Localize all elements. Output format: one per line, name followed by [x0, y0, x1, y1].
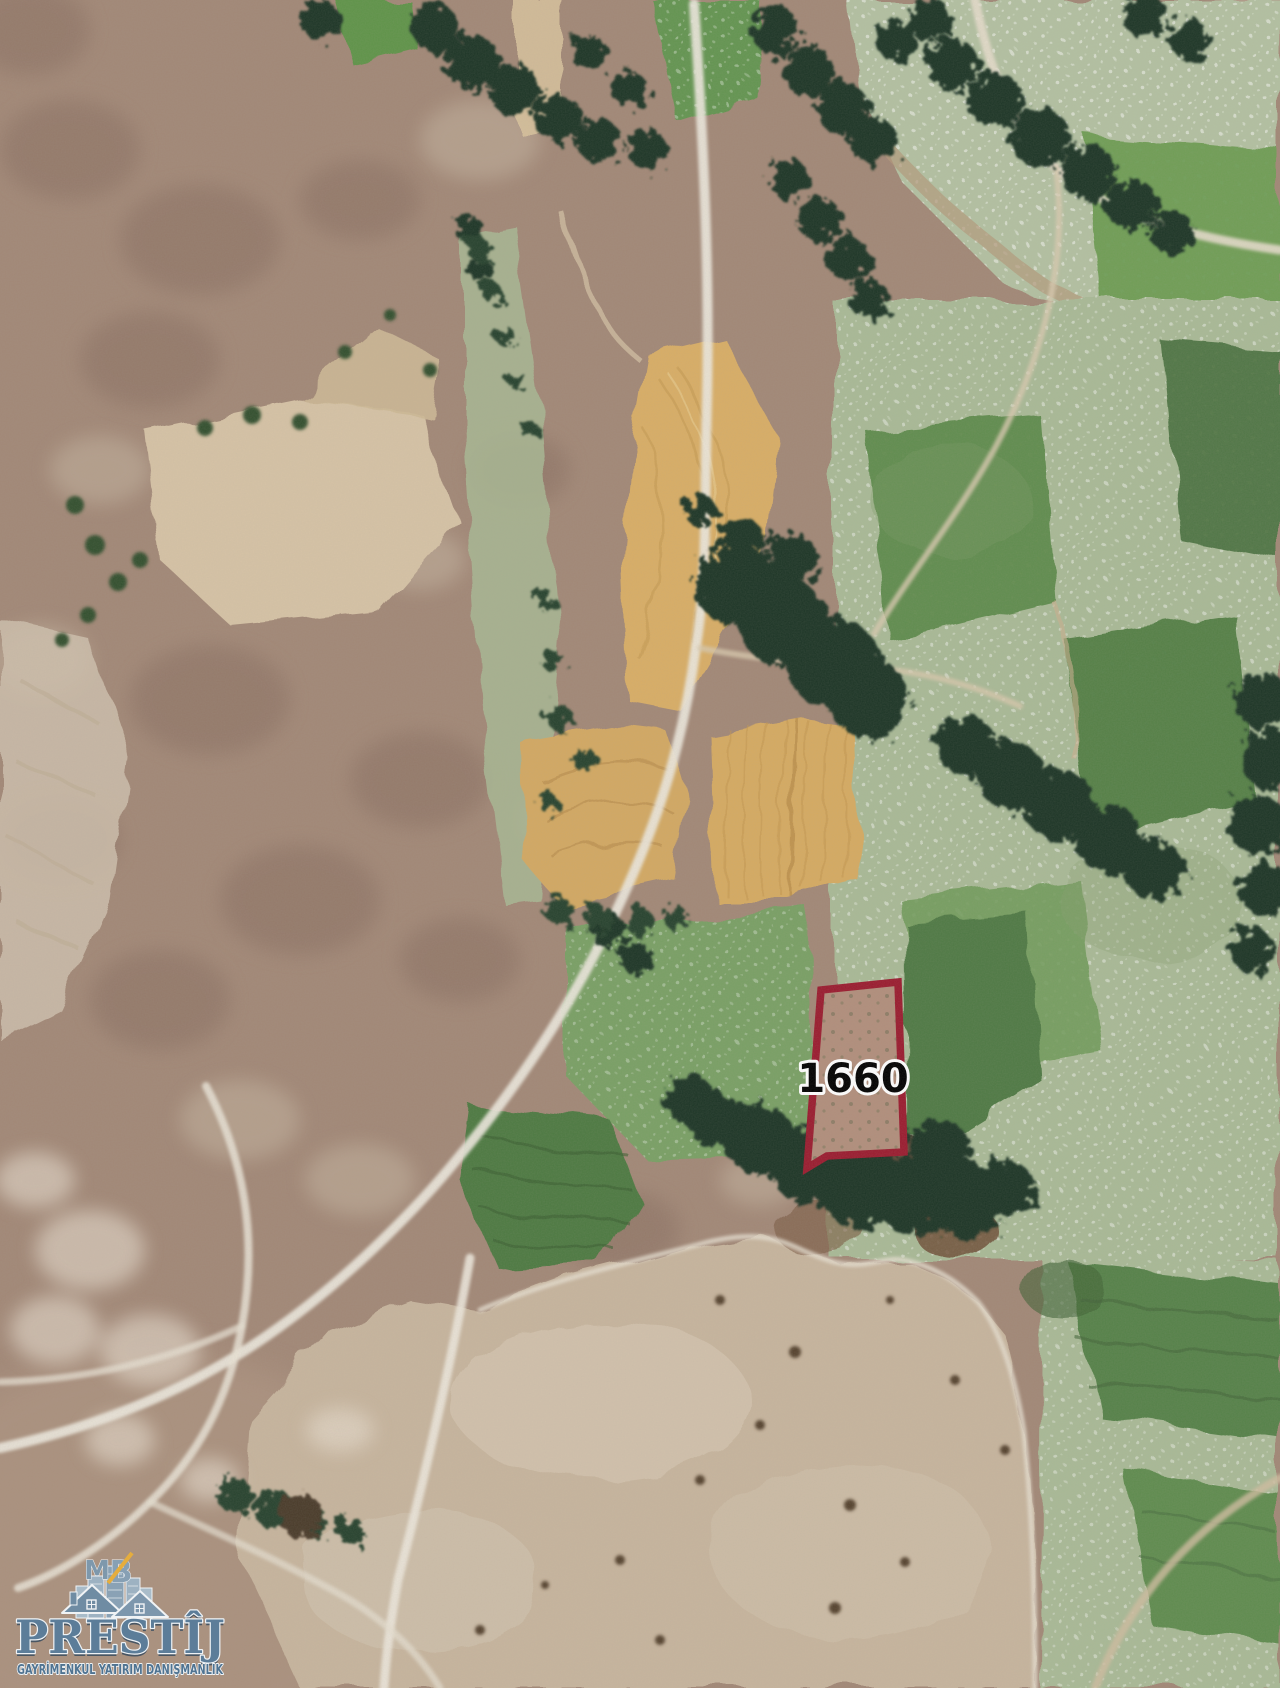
brand-name: PRESTÎJ: [15, 1609, 225, 1664]
satellite-map-image: 1660 M B: [0, 0, 1280, 1688]
listing-photo: 1660 M B: [0, 0, 1280, 1688]
monogram-m: M: [84, 1556, 110, 1586]
monogram-b: B: [110, 1555, 133, 1590]
photo-grain-overlay: [0, 0, 1280, 1688]
brand-tagline: GAYRİMENKUL YATIRIM DANIŞMANLIK: [17, 1661, 223, 1678]
